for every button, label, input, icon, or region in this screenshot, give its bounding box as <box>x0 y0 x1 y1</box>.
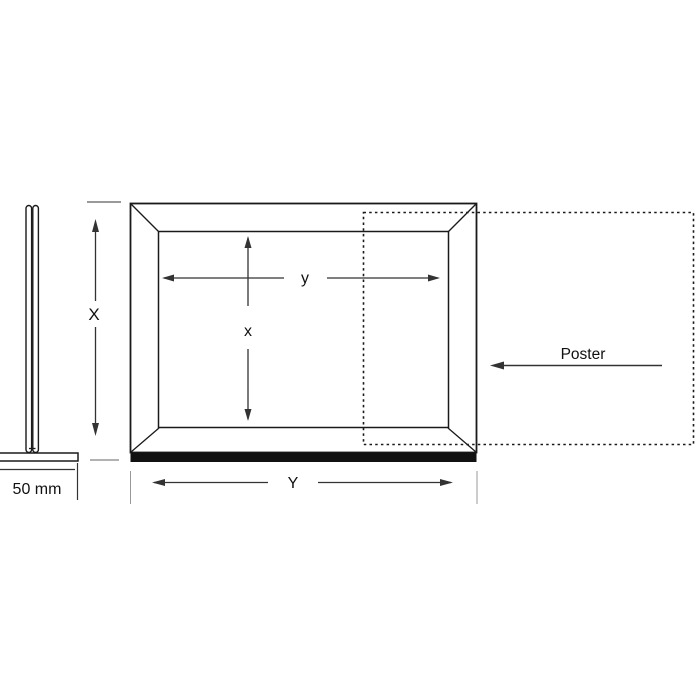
profile-bar-left <box>26 206 32 453</box>
base-plate <box>0 453 78 461</box>
poster-frame-diagram: 50 mm X <box>0 0 700 700</box>
outer-width-label: Y <box>288 475 299 492</box>
outer-width-arrowhead-left <box>152 479 165 486</box>
outer-width-arrowhead-right <box>440 479 453 486</box>
outer-height-label: X <box>88 305 99 324</box>
profile-bar-right <box>33 206 39 453</box>
frame-bottom-rail <box>131 453 477 463</box>
poster-label: Poster <box>561 346 606 363</box>
outer-height-dimension: X <box>87 202 121 460</box>
outer-height-arrowhead-up <box>92 219 99 232</box>
visible-width-label: y <box>301 270 309 287</box>
outer-height-arrowhead-down <box>92 423 99 436</box>
side-profile-view: 50 mm <box>0 206 78 501</box>
frame-front-view <box>131 204 477 463</box>
outer-width-dimension: Y <box>131 471 478 504</box>
visible-height-label: x <box>244 323 252 340</box>
diagram-canvas: 50 mm X <box>0 0 700 700</box>
frame-inner-rect <box>159 232 449 428</box>
poster-insert-arrowhead-left <box>490 362 504 370</box>
base-dimension-label: 50 mm <box>13 481 62 498</box>
